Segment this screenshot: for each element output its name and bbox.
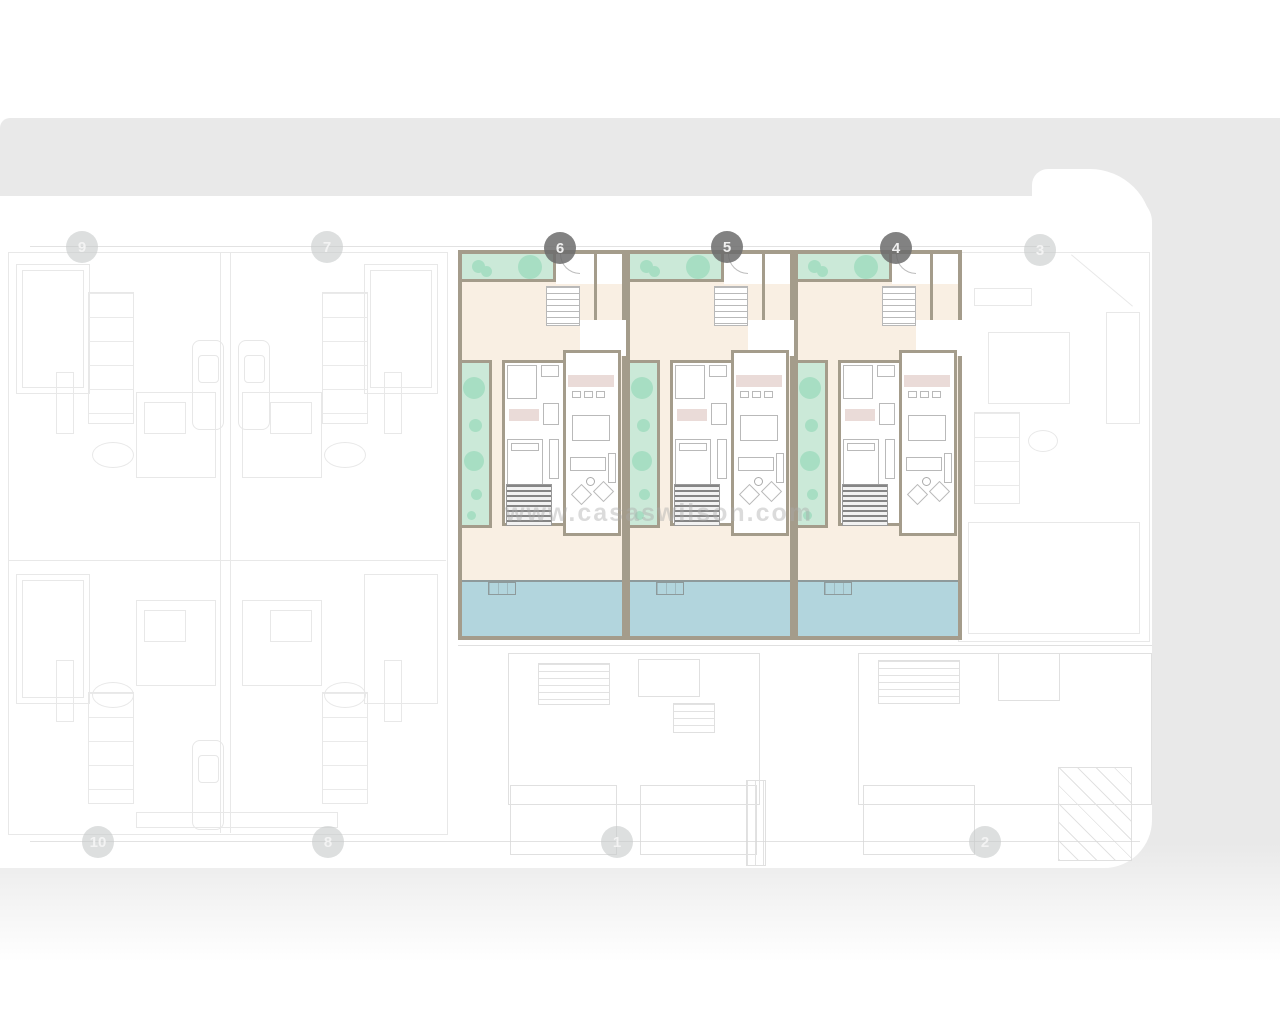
interior-stairs — [843, 365, 873, 399]
gfx-g — [998, 653, 1060, 701]
gfx-gell — [1028, 430, 1058, 452]
gfx-g — [746, 780, 766, 866]
gfx-g — [144, 402, 186, 434]
gfx-g — [673, 703, 715, 733]
plot-badge-5[interactable]: 5 — [711, 231, 743, 263]
pool-steps — [488, 582, 516, 595]
bed-pillow — [511, 443, 539, 451]
pool-steps — [824, 582, 852, 595]
wall-segment — [762, 254, 765, 320]
gfx-g — [878, 660, 960, 704]
side-table — [754, 477, 763, 486]
gfx-g — [322, 292, 368, 424]
entry-stairs — [546, 286, 580, 326]
kitchen-unit — [584, 391, 593, 398]
plot-badge-7: 7 — [311, 231, 343, 263]
wardrobe — [717, 439, 727, 479]
plot-badge-6[interactable]: 6 — [544, 232, 576, 264]
kitchen-counter — [568, 375, 614, 387]
gfx-g — [384, 660, 402, 722]
plot-badge-1: 1 — [601, 826, 633, 858]
pergola-louver — [842, 484, 888, 526]
wall-segment — [594, 254, 597, 320]
sofa — [570, 457, 606, 471]
plot-badge-2: 2 — [969, 826, 1001, 858]
tree-icon — [469, 419, 482, 432]
gfx-g — [88, 692, 134, 804]
swimming-pool — [798, 580, 958, 636]
side-garden-strip — [462, 360, 492, 528]
tree-icon — [464, 451, 484, 471]
bathroom — [543, 403, 559, 425]
side-table — [586, 477, 595, 486]
tree-icon — [631, 377, 653, 399]
wardrobe — [885, 439, 895, 479]
gfx-g — [988, 332, 1070, 404]
kitchen-counter — [736, 375, 782, 387]
bathroom — [711, 403, 727, 425]
gfx-gell — [92, 442, 134, 468]
tree-icon — [471, 489, 482, 500]
closet — [541, 365, 559, 377]
plot-badge-4[interactable]: 4 — [880, 232, 912, 264]
gfx-g — [22, 270, 84, 388]
ghost-floorplan-bottom-row — [458, 645, 1152, 867]
side-table — [922, 477, 931, 486]
gfx-g — [56, 660, 74, 722]
bed-pillow — [847, 443, 875, 451]
swimming-pool — [462, 580, 622, 636]
gfx-g — [538, 663, 610, 705]
wardrobe — [549, 439, 559, 479]
sideboard — [776, 453, 784, 483]
tree-icon — [463, 377, 485, 399]
interior-stairs — [675, 365, 705, 399]
tree-icon — [637, 419, 650, 432]
gfx-gfx — [198, 355, 219, 383]
bath-counter — [509, 409, 539, 421]
wall-segment — [930, 254, 933, 320]
tree-icon — [649, 266, 660, 277]
kitchen-unit — [932, 391, 941, 398]
plot-badge-8: 8 — [312, 826, 344, 858]
tree-icon — [800, 451, 820, 471]
gfx-gfx — [244, 355, 265, 383]
tree-icon — [686, 255, 710, 279]
kitchen-unit — [908, 391, 917, 398]
plot-badge-3: 3 — [1024, 234, 1056, 266]
tree-icon — [805, 419, 818, 432]
plot-badge-9: 9 — [66, 231, 98, 263]
sofa — [738, 457, 774, 471]
kitchen-unit — [596, 391, 605, 398]
ghost-floorplan-right-villa — [958, 252, 1152, 644]
gfx-gfx — [198, 755, 219, 783]
bath-counter — [677, 409, 707, 421]
entry-stairs — [714, 286, 748, 326]
gfx-gl — [8, 560, 446, 561]
unit-5-floorplan[interactable] — [626, 250, 794, 640]
gfx-g — [384, 372, 402, 434]
kitchen-unit — [920, 391, 929, 398]
gfx-g — [863, 785, 975, 855]
plot-badge-10: 10 — [82, 826, 114, 858]
gfx-gl — [230, 252, 231, 833]
kitchen-unit — [752, 391, 761, 398]
gfx-g — [88, 292, 134, 424]
roof-garden-strip — [630, 254, 724, 282]
unit-6-floorplan[interactable] — [458, 250, 626, 640]
tree-icon — [632, 451, 652, 471]
gfx-g — [270, 610, 312, 642]
gfx-g — [640, 785, 757, 855]
swimming-pool — [630, 580, 790, 636]
bathroom — [879, 403, 895, 425]
gfx-g — [56, 372, 74, 434]
tree-icon — [799, 377, 821, 399]
gfx-g — [270, 402, 312, 434]
gfx-gell — [92, 682, 134, 708]
gfx-g — [974, 412, 1020, 504]
roof-garden-strip — [798, 254, 892, 282]
sofa — [906, 457, 942, 471]
gfx-g — [974, 288, 1032, 306]
gfx-g — [1058, 767, 1132, 861]
bed-pillow — [679, 443, 707, 451]
gfx-g — [638, 659, 700, 697]
gfx-g — [22, 580, 84, 698]
gfx-gl — [458, 645, 1152, 646]
watermark: www.casaswilson.com — [505, 499, 845, 528]
gfx-g — [370, 270, 432, 388]
tree-icon — [817, 266, 828, 277]
lounge-chair — [929, 481, 950, 502]
closet — [877, 365, 895, 377]
gfx-gell — [324, 442, 366, 468]
sideboard — [608, 453, 616, 483]
site-plan-canvas: 97654310812www.casaswilson.com — [0, 0, 1280, 1024]
tree-icon — [467, 511, 476, 520]
ghost-floorplan-left-building — [8, 252, 448, 835]
pool-steps — [656, 582, 684, 595]
kitchen-unit — [740, 391, 749, 398]
sideboard — [944, 453, 952, 483]
house-living-wing — [899, 350, 957, 536]
tree-icon — [854, 255, 878, 279]
tree-icon — [518, 255, 542, 279]
dining-table — [908, 415, 946, 441]
bath-counter — [845, 409, 875, 421]
unit-4-floorplan[interactable] — [794, 250, 962, 640]
tree-icon — [481, 266, 492, 277]
kitchen-counter — [904, 375, 950, 387]
closet — [709, 365, 727, 377]
dining-table — [572, 415, 610, 441]
entry-stairs — [882, 286, 916, 326]
gfx-g — [1106, 312, 1140, 424]
interior-stairs — [507, 365, 537, 399]
gfx-g — [136, 812, 338, 828]
kitchen-unit — [572, 391, 581, 398]
kitchen-unit — [764, 391, 773, 398]
gfx-g — [144, 610, 186, 642]
gfx-g — [322, 692, 368, 804]
roof-garden-strip — [462, 254, 556, 282]
dining-table — [740, 415, 778, 441]
lounge-chair — [907, 484, 928, 505]
gfx-g — [968, 522, 1140, 634]
gfx-gell — [324, 682, 366, 708]
